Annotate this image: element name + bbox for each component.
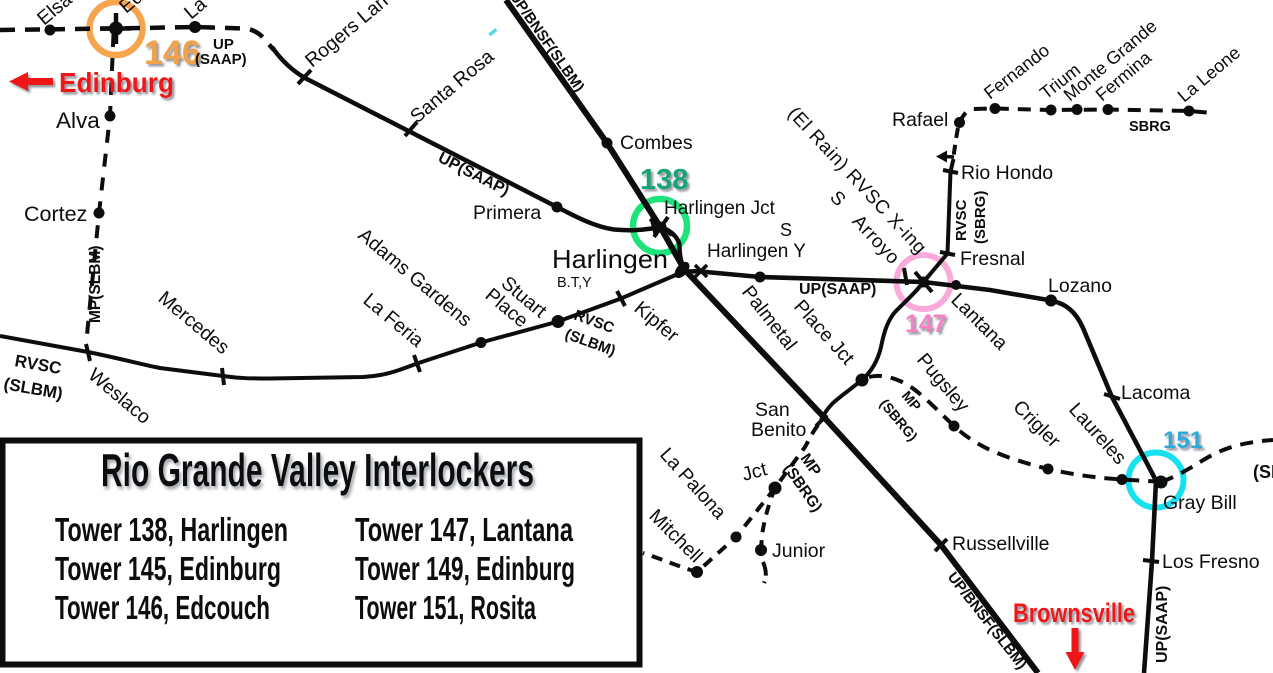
svg-text:Rafael: Rafael (892, 109, 948, 131)
svg-text:Harlingen Y: Harlingen Y (707, 241, 806, 262)
svg-text:(SAAP): (SAAP) (195, 51, 247, 68)
svg-text:Lozano: Lozano (1048, 275, 1112, 297)
svg-text:Rio Grande Valley Interlockers: Rio Grande Valley Interlockers (101, 444, 534, 496)
svg-text:Junior: Junior (772, 540, 826, 562)
svg-text:Tower 149, Edinburg: Tower 149, Edinburg (355, 550, 575, 587)
svg-text:Russellville: Russellville (952, 533, 1050, 555)
svg-text:Rio Hondo: Rio Hondo (961, 162, 1053, 184)
svg-text:Harlingen: Harlingen (552, 244, 668, 274)
svg-text:Combes: Combes (620, 132, 693, 154)
svg-text:Brownsville: Brownsville (1013, 598, 1135, 628)
svg-text:Benito: Benito (751, 419, 806, 441)
svg-text:San: San (755, 399, 790, 421)
svg-text:S: S (780, 220, 792, 240)
svg-text:Los Fresno: Los Fresno (1162, 551, 1260, 573)
svg-text:Alva: Alva (56, 108, 100, 133)
svg-text:Tower 146, Edcouch: Tower 146, Edcouch (55, 589, 270, 626)
svg-text:147: 147 (905, 310, 947, 338)
svg-text:UP(SAAP): UP(SAAP) (799, 281, 876, 298)
svg-text:SBRG: SBRG (1129, 119, 1171, 135)
svg-text:(SL: (SL (1253, 462, 1273, 482)
svg-text:(SBRG): (SBRG) (972, 191, 989, 244)
svg-text:Tower 151, Rosita: Tower 151, Rosita (355, 589, 536, 626)
svg-text:RVSC: RVSC (953, 199, 970, 241)
svg-text:Tower 145, Edinburg: Tower 145, Edinburg (55, 550, 281, 587)
svg-text:Primera: Primera (473, 202, 541, 224)
svg-text:Harlingen Jct: Harlingen Jct (664, 198, 776, 219)
svg-text:151: 151 (1163, 427, 1203, 454)
svg-text:Fresnal: Fresnal (960, 248, 1025, 270)
svg-text:B.T,Y: B.T,Y (557, 275, 592, 291)
svg-text:Lacoma: Lacoma (1121, 382, 1191, 404)
svg-text:Gray Bill: Gray Bill (1163, 492, 1237, 514)
svg-text:Cortez: Cortez (24, 202, 87, 226)
svg-text:Edinburg: Edinburg (59, 67, 174, 98)
svg-text:MP(SLBM): MP(SLBM) (87, 246, 104, 324)
svg-text:138: 138 (640, 164, 688, 196)
svg-text:UP(SAAP): UP(SAAP) (1154, 586, 1171, 663)
svg-text:Tower 147, Lantana: Tower 147, Lantana (355, 511, 573, 548)
svg-text:Tower 138, Harlingen: Tower 138, Harlingen (55, 511, 288, 548)
